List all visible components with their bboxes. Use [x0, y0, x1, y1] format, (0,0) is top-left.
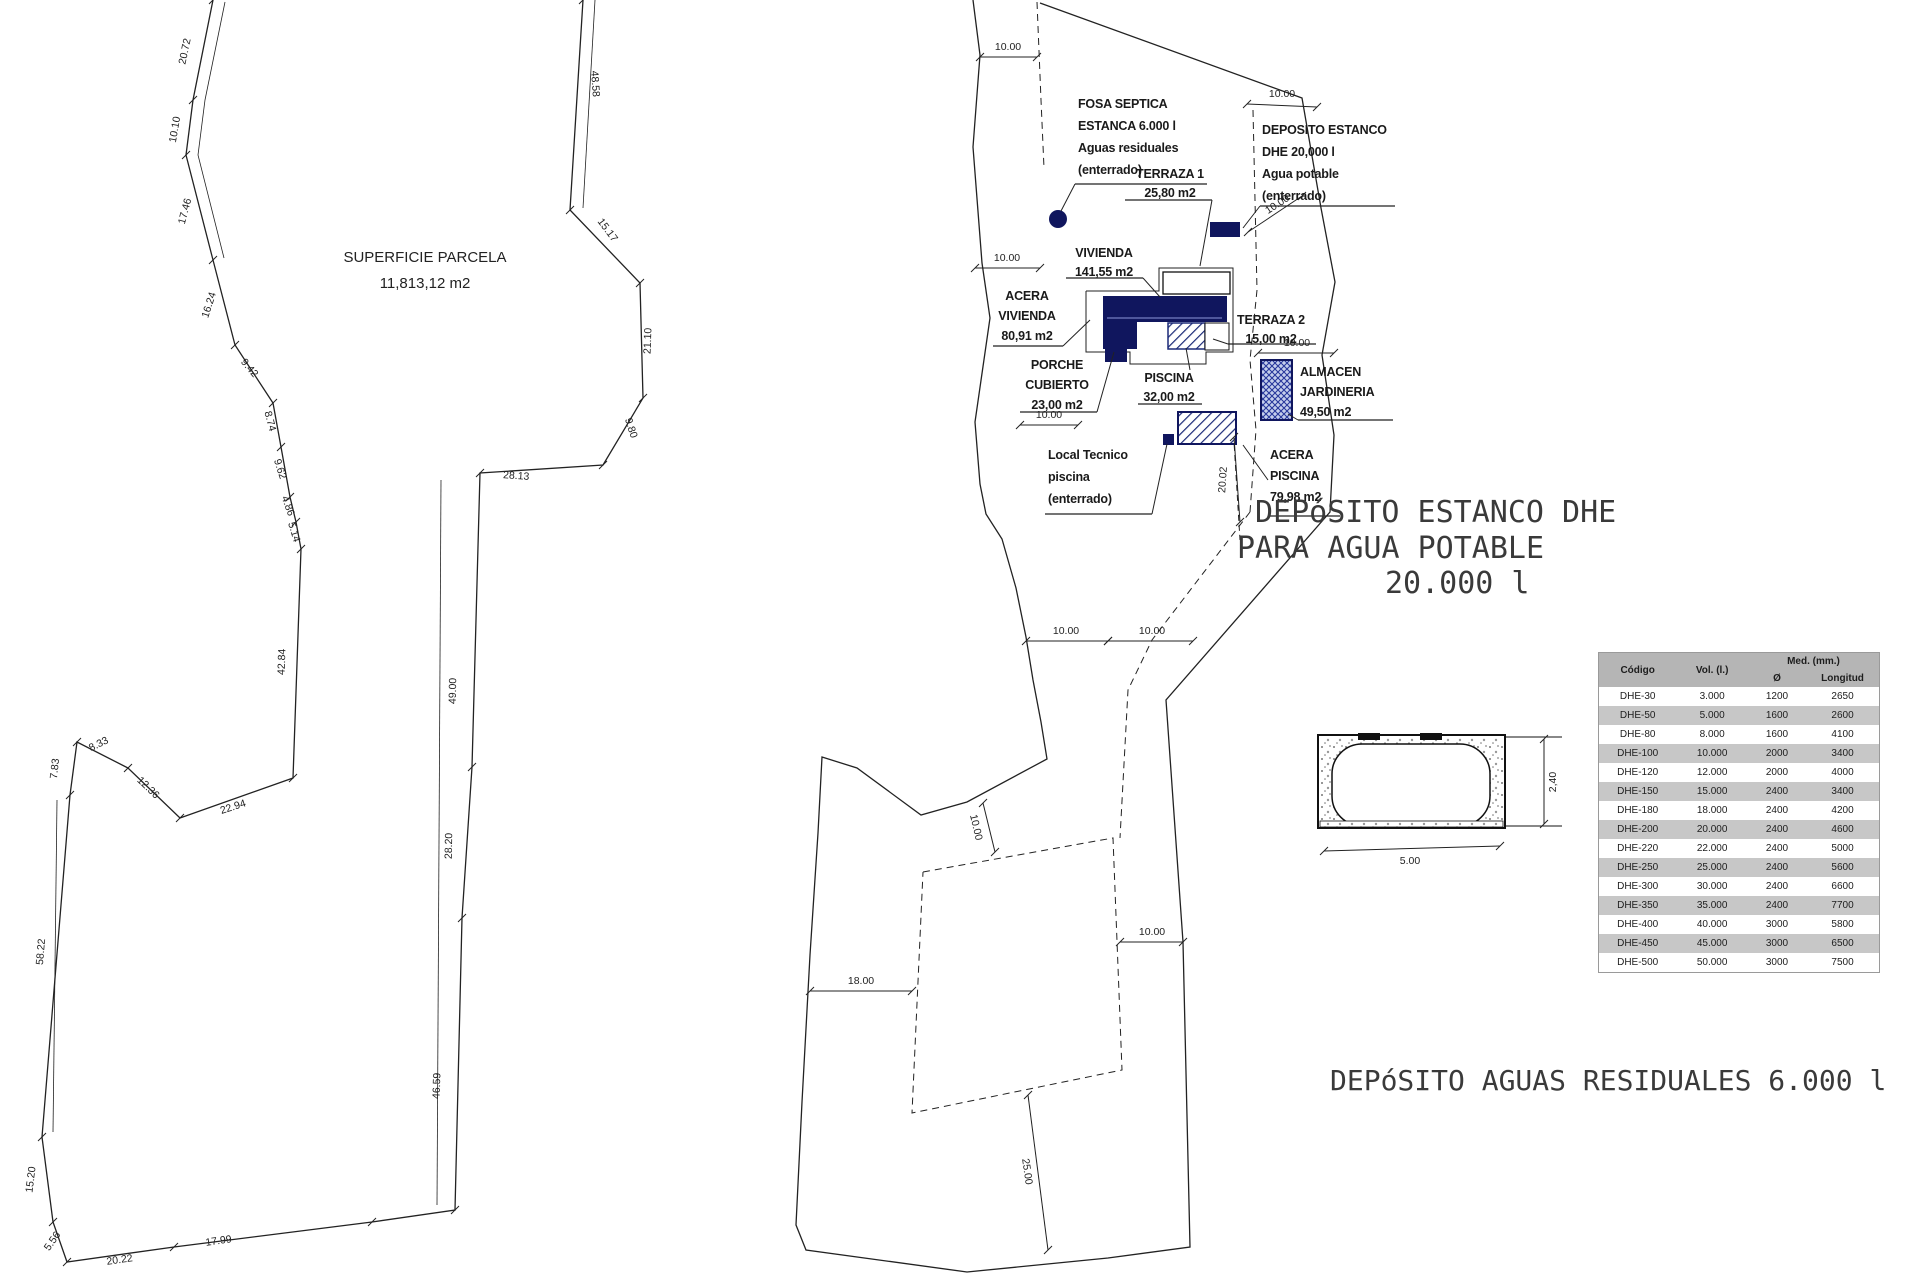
table-cell: DHE-400	[1599, 915, 1677, 934]
table-cell: 4200	[1806, 801, 1879, 820]
annotation-text: piscina	[1048, 470, 1091, 484]
dimension-label: 8.74	[261, 410, 278, 433]
table-row: DHE-35035.00024007700	[1599, 896, 1880, 915]
table-cell: DHE-50	[1599, 706, 1677, 725]
table-cell: 15.000	[1676, 782, 1748, 801]
annotation-text: 80,91 m2	[1001, 329, 1052, 343]
setback-line	[1037, 2, 1044, 168]
annotation-text: TERRAZA 2	[1237, 313, 1305, 327]
annotation-text: PISCINA	[1144, 371, 1193, 385]
dimension-label: 28.20	[443, 833, 455, 860]
annotation-text: Aguas residuales	[1078, 141, 1179, 155]
dimension-line	[1247, 104, 1317, 107]
dimension-label: 10.00	[1269, 88, 1295, 100]
dimension-label: 16.24	[199, 291, 219, 320]
survey-tick	[991, 848, 999, 856]
site-plan-figure: 10.0010.0010.0010.0010.0010.0010.0010.00…	[796, 0, 1395, 1272]
table-cell: 5000	[1806, 839, 1879, 858]
annotation-text: ACERA	[1005, 289, 1049, 303]
table-cell: 12.000	[1676, 763, 1748, 782]
setback-line	[1120, 512, 1250, 838]
table-cell: 10.000	[1676, 744, 1748, 763]
setback-line	[1250, 110, 1257, 512]
table-cell: DHE-180	[1599, 801, 1677, 820]
table-row: DHE-12012.00020004000	[1599, 763, 1880, 782]
dimension-label: 17.99	[205, 1233, 233, 1249]
annotation-text: (enterrado)	[1262, 189, 1326, 203]
deposito-marker	[1210, 222, 1240, 237]
dhe-table-body: DHE-303.00012002650DHE-505.00016002600DH…	[1599, 687, 1880, 973]
table-cell: DHE-500	[1599, 953, 1677, 973]
dimension-label: 17.46	[176, 197, 194, 226]
dimension-label: 8.33	[87, 734, 111, 754]
dimension-label: 21.10	[642, 327, 655, 354]
piscina-footprint	[1168, 323, 1205, 349]
table-cell: 5800	[1806, 915, 1879, 934]
parcel-survey-figure: 20.7210.1017.4616.249.428.749.624.865.14…	[23, 0, 654, 1268]
leader-line	[1061, 184, 1075, 211]
dimension-label: 22.94	[219, 797, 248, 817]
annotation-text: VIVIENDA	[998, 309, 1056, 323]
annotation-text: PARA AGUA POTABLE	[1237, 531, 1544, 566]
annotation-text: VIVIENDA	[1075, 246, 1133, 260]
dimension-label: 46.59	[431, 1072, 444, 1099]
annotation-text: PORCHE	[1031, 358, 1083, 372]
table-cell: DHE-200	[1599, 820, 1677, 839]
dimension-label: 28.13	[503, 469, 530, 483]
cad-drawing: 20.7210.1017.4616.249.428.749.624.865.14…	[0, 0, 1920, 1280]
table-row: DHE-505.00016002600	[1599, 706, 1880, 725]
table-cell: 1600	[1748, 725, 1806, 744]
leader-line	[1152, 444, 1167, 514]
table-cell: 35.000	[1676, 896, 1748, 915]
table-cell: 7700	[1806, 896, 1879, 915]
table-cell: 2000	[1748, 763, 1806, 782]
table-cell: 25.000	[1676, 858, 1748, 877]
annotation-text: DEPOSITO ESTANCO	[1262, 123, 1387, 137]
table-row: DHE-10010.00020003400	[1599, 744, 1880, 763]
site-plan-canvas: 20.7210.1017.4616.249.428.749.624.865.14…	[0, 0, 1920, 1280]
terraza2-footprint	[1205, 323, 1229, 350]
col-longitud: Longitud	[1806, 670, 1879, 687]
table-cell: 8.000	[1676, 725, 1748, 744]
annotation-text: 49,50 m2	[1300, 405, 1351, 419]
table-cell: DHE-350	[1599, 896, 1677, 915]
table-cell: 2400	[1748, 896, 1806, 915]
table-cell: 2000	[1748, 744, 1806, 763]
dimension-label: 9.62	[271, 458, 289, 481]
parcel-boundary	[42, 0, 643, 1262]
table-cell: 1600	[1748, 706, 1806, 725]
offset-dimension-line	[583, 0, 595, 208]
annotation-text: DEPóSITO ESTANCO DHE	[1255, 495, 1616, 530]
table-cell: 2400	[1748, 858, 1806, 877]
leader-line	[1143, 278, 1160, 297]
table-row: DHE-15015.00024003400	[1599, 782, 1880, 801]
manhole-cover	[1358, 733, 1380, 740]
table-cell: DHE-250	[1599, 858, 1677, 877]
table-cell: 22.000	[1676, 839, 1748, 858]
annotation-text: DHE 20,000 l	[1262, 145, 1335, 159]
table-row: DHE-50050.00030007500	[1599, 953, 1880, 973]
annotation-text: Agua potable	[1262, 167, 1339, 181]
dimension-label: 2,40	[1547, 772, 1559, 793]
table-cell: 45.000	[1676, 934, 1748, 953]
dimension-label: 49.00	[447, 678, 459, 705]
table-cell: 2600	[1806, 706, 1879, 725]
annotation-text: 141,55 m2	[1075, 265, 1133, 279]
table-cell: 5.000	[1676, 706, 1748, 725]
dimension-label: 9.42	[238, 356, 260, 379]
dimension-label: 20.22	[106, 1252, 134, 1268]
col-vol: Vol. (l.)	[1676, 653, 1748, 688]
table-cell: DHE-100	[1599, 744, 1677, 763]
table-row: DHE-22022.00024005000	[1599, 839, 1880, 858]
table-cell: 30.000	[1676, 877, 1748, 896]
table-cell: 3000	[1748, 953, 1806, 973]
table-cell: DHE-220	[1599, 839, 1677, 858]
table-cell: 18.000	[1676, 801, 1748, 820]
base-slab	[1320, 821, 1503, 827]
dimension-label: 20.72	[176, 37, 193, 65]
table-cell: 20.000	[1676, 820, 1748, 839]
dimension-label: 10.00	[1139, 625, 1165, 637]
table-row: DHE-40040.00030005800	[1599, 915, 1880, 934]
terraza1-footprint	[1163, 272, 1230, 294]
annotation-text: 20.000 l	[1385, 566, 1530, 601]
table-cell: 7500	[1806, 953, 1879, 973]
table-row: DHE-45045.00030006500	[1599, 934, 1880, 953]
annotation-text: ALMACEN	[1300, 365, 1361, 379]
dimension-label: 10.00	[967, 813, 985, 841]
table-row: DHE-18018.00024004200	[1599, 801, 1880, 820]
dhe-spec-table: Código Vol. (l.) Med. (mm.) Ø Longitud D…	[1598, 652, 1880, 973]
table-cell: 4600	[1806, 820, 1879, 839]
table-cell: 2400	[1748, 820, 1806, 839]
table-cell: 2400	[1748, 801, 1806, 820]
table-cell: 6600	[1806, 877, 1879, 896]
col-codigo: Código	[1599, 653, 1677, 688]
dimension-label: 20.02	[1216, 466, 1230, 493]
table-row: DHE-303.00012002650	[1599, 687, 1880, 706]
table-cell: 40.000	[1676, 915, 1748, 934]
table-row: DHE-808.00016004100	[1599, 725, 1880, 744]
survey-tick	[1244, 228, 1252, 236]
annotation-text: (enterrado)	[1048, 492, 1112, 506]
table-cell: 4100	[1806, 725, 1879, 744]
col-med: Med. (mm.)	[1748, 653, 1880, 671]
survey-tick	[979, 799, 987, 807]
table-row: DHE-20020.00024004600	[1599, 820, 1880, 839]
dimension-line	[1234, 437, 1240, 522]
annotation-text: SUPERFICIE PARCELA	[343, 249, 506, 266]
annotation-text: JARDINERIA	[1300, 385, 1375, 399]
annotation-text: TERRAZA 1	[1136, 167, 1204, 181]
survey-tick	[231, 341, 239, 349]
dimension-label: 48.58	[588, 70, 602, 97]
dimension-label: 10.10	[167, 115, 183, 143]
local-tecnico-marker	[1163, 434, 1174, 445]
tank-body	[1332, 744, 1490, 826]
annotation-text: ESTANCA 6.000 l	[1078, 119, 1176, 133]
setback-rectangle	[912, 838, 1122, 1113]
annotation-text: ACERA	[1270, 448, 1314, 462]
table-cell: 1200	[1748, 687, 1806, 706]
annotation-text: PISCINA	[1270, 469, 1319, 483]
dimension-label: 18.00	[848, 975, 874, 987]
porche-footprint	[1105, 349, 1127, 362]
annotation-text: CUBIERTO	[1025, 378, 1089, 392]
local-tecnico-footprint	[1178, 412, 1236, 444]
table-cell: 2400	[1748, 839, 1806, 858]
table-cell: 50.000	[1676, 953, 1748, 973]
annotation-text: 25,80 m2	[1144, 186, 1195, 200]
table-cell: 3000	[1748, 934, 1806, 953]
dimension-label: 9.80	[622, 417, 640, 440]
table-cell: DHE-30	[1599, 687, 1677, 706]
table-cell: 6500	[1806, 934, 1879, 953]
annotation-text: (enterrado)	[1078, 163, 1142, 177]
annotation-text: 23,00 m2	[1031, 398, 1082, 412]
table-row: DHE-30030.00024006600	[1599, 877, 1880, 896]
table-cell: DHE-120	[1599, 763, 1677, 782]
survey-tick	[209, 256, 217, 264]
table-cell: 2400	[1748, 877, 1806, 896]
dimension-label: 10.00	[994, 252, 1020, 264]
dimension-label: 25.00	[1019, 1158, 1035, 1186]
table-cell: 3000	[1748, 915, 1806, 934]
annotation-text: FOSA SEPTICA	[1078, 97, 1168, 111]
dimension-label: 10.00	[1139, 926, 1165, 938]
table-row: DHE-25025.00024005600	[1599, 858, 1880, 877]
dimension-label: 58.22	[34, 938, 48, 965]
annotation-text: Local Tecnico	[1048, 448, 1128, 462]
dimension-line	[1324, 846, 1500, 851]
table-cell: 3400	[1806, 744, 1879, 763]
dimension-label: 5.14	[285, 521, 302, 544]
dimension-label: 15.20	[23, 1166, 38, 1194]
table-cell: DHE-150	[1599, 782, 1677, 801]
col-diametro: Ø	[1748, 670, 1806, 687]
dimension-label: 10.00	[1053, 625, 1079, 637]
dimension-label: 10.00	[995, 41, 1021, 53]
annotation-text: 32,00 m2	[1143, 390, 1194, 404]
leader-line	[1243, 445, 1268, 480]
annotation-text: 11,813,12 m2	[380, 275, 471, 292]
dimension-label: 4.86	[279, 494, 297, 517]
table-cell: DHE-450	[1599, 934, 1677, 953]
table-cell: DHE-300	[1599, 877, 1677, 896]
fosa-septica-marker	[1049, 210, 1067, 228]
dimension-label: 42.84	[276, 648, 289, 675]
manhole-cover	[1420, 733, 1442, 740]
leader-line	[1243, 206, 1260, 228]
table-cell: 3.000	[1676, 687, 1748, 706]
dimension-label: 5.00	[1400, 855, 1421, 867]
dhe-table-header: Código Vol. (l.) Med. (mm.) Ø Longitud	[1599, 653, 1880, 688]
annotation-text: DEPóSITO AGUAS RESIDUALES 6.000 l	[1330, 1064, 1886, 1097]
dimension-line	[983, 803, 995, 852]
leader-line	[1186, 348, 1190, 370]
table-cell: 4000	[1806, 763, 1879, 782]
table-cell: 3400	[1806, 782, 1879, 801]
table-cell: 2400	[1748, 782, 1806, 801]
table-cell: DHE-80	[1599, 725, 1677, 744]
table-cell: 2650	[1806, 687, 1879, 706]
table-cell: 5600	[1806, 858, 1879, 877]
dimension-label: 7.83	[48, 758, 62, 780]
almacen-footprint	[1261, 360, 1292, 420]
